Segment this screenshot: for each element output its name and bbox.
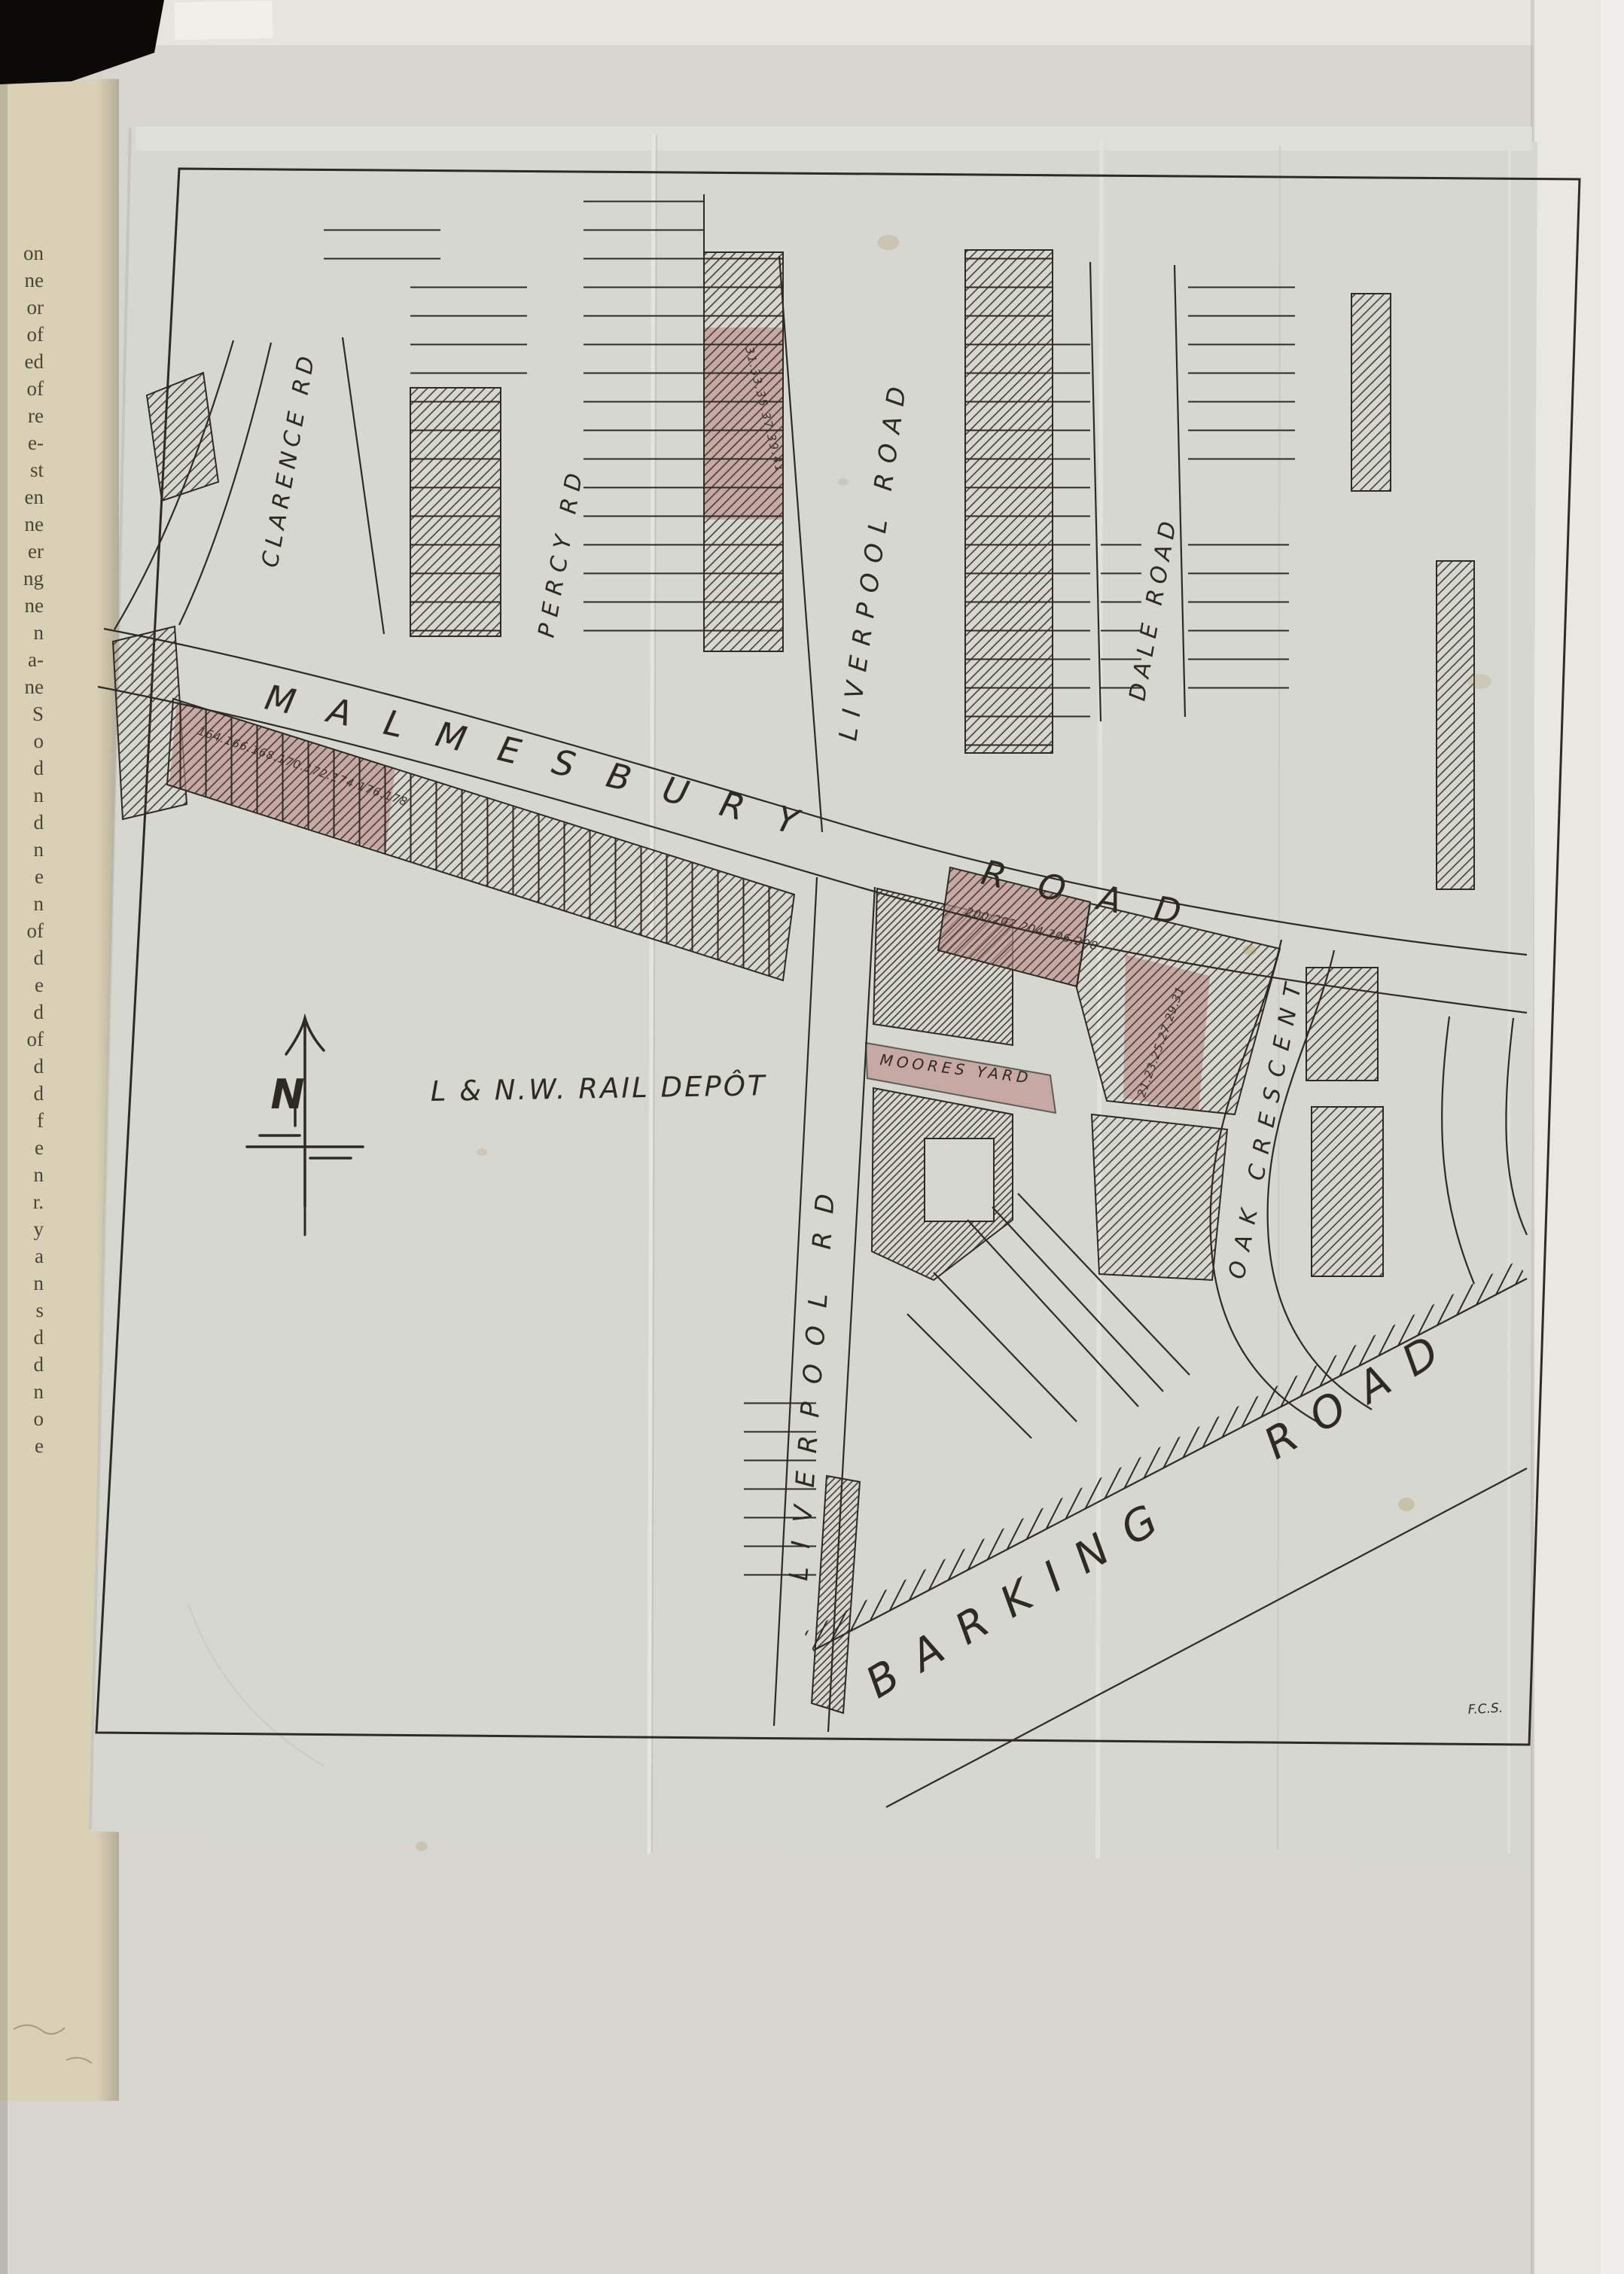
text-fragment: d <box>0 1080 44 1107</box>
text-fragment: ne <box>0 673 44 700</box>
text-fragment: s <box>0 1297 44 1324</box>
text-fragment: n <box>0 890 44 917</box>
text-fragment: r. <box>0 1188 44 1215</box>
text-fragment: e <box>0 971 44 998</box>
map-scan-svg: N MALMESBURY ROAD BARKING ROAD CLARENCE … <box>0 0 1624 2274</box>
text-fragment: ne <box>0 592 44 619</box>
text-fragment: ed <box>0 348 44 375</box>
text-fragment: n <box>0 1161 44 1188</box>
text-fragment: e <box>0 863 44 890</box>
book-page-text-fragments: onneorofedofree-stenneerngnena-neSodndne… <box>0 239 44 1459</box>
text-fragment: S <box>0 700 44 727</box>
text-fragment: a <box>0 1242 44 1270</box>
text-fragment: d <box>0 1351 44 1378</box>
text-fragment: re <box>0 402 44 429</box>
surveyor-credit: F.C.S. <box>1467 1701 1503 1718</box>
text-fragment: of <box>0 321 44 348</box>
scanned-map-page: N MALMESBURY ROAD BARKING ROAD CLARENCE … <box>0 0 1624 2274</box>
text-fragment: a- <box>0 646 44 673</box>
text-fragment: n <box>0 782 44 809</box>
text-fragment: o <box>0 727 44 754</box>
text-fragment: st <box>0 456 44 483</box>
text-fragment: or <box>0 294 44 321</box>
place-label-rail-depot: L & N.W. RAIL DEPÔT <box>430 1068 766 1108</box>
text-fragment: e <box>0 1134 44 1161</box>
text-fragment: f <box>0 1107 44 1134</box>
text-fragment: n <box>0 1378 44 1405</box>
text-fragment: en <box>0 483 44 511</box>
text-fragment: er <box>0 538 44 565</box>
text-fragment: of <box>0 917 44 944</box>
text-fragment: y <box>0 1215 44 1242</box>
text-fragment: d <box>0 1053 44 1080</box>
text-fragment: d <box>0 809 44 836</box>
text-fragment: n <box>0 619 44 646</box>
text-fragment: ne <box>0 267 44 294</box>
text-fragment: on <box>0 239 44 267</box>
text-fragment: d <box>0 944 44 971</box>
text-fragment: o <box>0 1405 44 1432</box>
text-fragment: e <box>0 1432 44 1459</box>
text-fragment: d <box>0 1324 44 1351</box>
text-fragment: e- <box>0 429 44 456</box>
text-fragment: n <box>0 1270 44 1297</box>
text-fragment: ng <box>0 565 44 592</box>
text-fragment: d <box>0 754 44 782</box>
compass-n-label: N <box>270 1071 304 1118</box>
text-fragment: of <box>0 1026 44 1053</box>
text-fragment: d <box>0 998 44 1026</box>
text-fragment: of <box>0 375 44 402</box>
text-fragment: n <box>0 836 44 863</box>
text-fragment: ne <box>0 511 44 538</box>
